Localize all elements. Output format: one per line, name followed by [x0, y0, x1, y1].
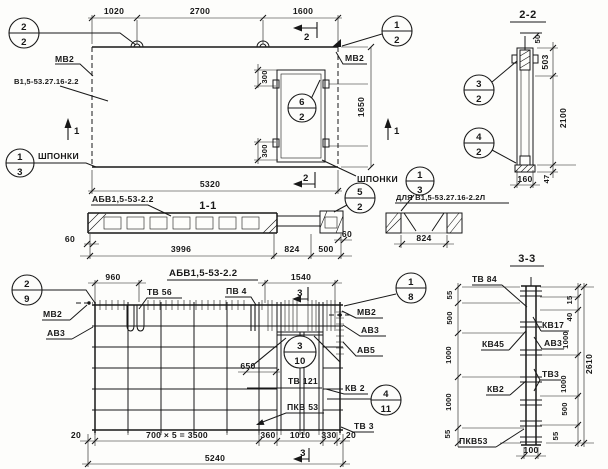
callout-elevation-left: 2 2 [9, 18, 39, 48]
arrow-up-icon [385, 118, 392, 128]
leader-line [42, 290, 95, 303]
arrow-icon [256, 419, 265, 425]
core-void [150, 217, 167, 229]
callout-num: 6 [299, 97, 305, 108]
callout-num: 2 [24, 279, 30, 290]
dim-2700: 2700 [190, 6, 210, 16]
arrow-left-icon [293, 181, 302, 188]
core-void [219, 217, 236, 229]
section-1-1-view: АБВ1,5-53-2.2 1-1 60 3996 824 500 60 5 2 [65, 183, 375, 259]
section-mark-label: 1 [74, 126, 80, 137]
end-block-core [325, 217, 337, 228]
callout-num: 3 [297, 341, 303, 352]
dim-right-55: 55 [551, 431, 560, 440]
dim-right-1000a: 1000 [561, 331, 570, 349]
dim-60-right: 60 [342, 229, 352, 239]
core-void [242, 217, 259, 229]
callout-sheet: 3 [17, 167, 23, 178]
dim-60-left: 60 [65, 234, 75, 244]
section-mark-label: 2 [303, 173, 309, 184]
core-void [104, 217, 121, 229]
dim-right-500: 500 [560, 402, 569, 415]
dim-left-500: 500 [445, 311, 454, 324]
dim-row: 700 × 5 = 3500 [146, 430, 208, 440]
section-mark-label: 1 [394, 126, 400, 137]
label-tv56: ТВ 56 [147, 287, 172, 297]
label-av3: АВ3 [544, 338, 562, 348]
leader-line [344, 294, 396, 306]
bottom-cap [515, 165, 535, 172]
label-kv45: КВ45 [482, 339, 504, 349]
end-block [447, 213, 462, 233]
callout-sheet: 10 [294, 356, 305, 367]
label-kv17: КВ17 [542, 320, 564, 330]
joint-strip [277, 216, 320, 226]
dim-3996: 3996 [171, 244, 191, 254]
label-tv84: ТВ 84 [472, 274, 497, 284]
dim-5320: 5320 [200, 179, 220, 189]
label-mv2-left: МВ2 [55, 54, 74, 64]
dim-right-15: 15 [565, 295, 574, 304]
callout-section22-lower: 4 2 [464, 128, 494, 158]
leader-line [492, 150, 516, 163]
callout-elevation-right: 1 2 [382, 16, 412, 46]
section-mark-label: 3 [300, 448, 306, 459]
callout-section22-upper: 3 2 [464, 75, 494, 105]
joint-lines [401, 213, 447, 231]
label-tv121: ТВ 121 [288, 376, 318, 386]
label-kv2: КВ 2 [345, 383, 365, 393]
leader-line [225, 297, 256, 305]
dim-160: 160 [517, 174, 532, 184]
callout-num: 1 [417, 170, 423, 181]
anchor-mark [323, 80, 329, 88]
drawing-canvas: 1 1 2 2 1020 2700 1600 5320 1650 300 300… [0, 0, 608, 469]
dim-5240: 5240 [205, 453, 225, 463]
callout-mesh-bottom-right: 4 11 [371, 385, 401, 415]
anchor-mark [273, 139, 279, 147]
view-title: 3-3 [518, 253, 535, 265]
dim-right-40: 40 [565, 313, 574, 322]
dim-960: 960 [105, 272, 120, 282]
dim-right-1000b: 1000 [559, 375, 568, 393]
callout-mesh-top-right: 1 8 [396, 273, 426, 303]
dim-300-top: 300 [260, 70, 269, 83]
section-mark-label: 3 [297, 288, 303, 299]
callout-detail: 1 3 [406, 167, 434, 196]
leader-line [91, 205, 171, 216]
label-keys-left: ШПОНКИ [38, 151, 79, 161]
label-tv3: ТВ3 [542, 369, 559, 379]
hatch-lines [386, 213, 462, 233]
dim-824: 824 [284, 244, 299, 254]
drawing-sheet: 1 1 2 2 1020 2700 1600 5320 1650 300 300… [0, 0, 608, 469]
label-mark: АБВ1,5-53-2.2 [92, 194, 154, 204]
section-2-2-view: 2-2 50 503 2100 47 160 3 2 4 2 [464, 9, 576, 188]
callout-num: 3 [476, 79, 482, 90]
elevation-view: 1 1 2 2 1020 2700 1600 5320 1650 300 300… [6, 6, 412, 194]
anchor-mark [323, 139, 329, 147]
leader-line [34, 163, 96, 167]
callout-sheet: 2 [476, 94, 482, 105]
leader-line [55, 64, 93, 76]
label-mv2-right: МВ2 [357, 307, 376, 317]
bottom-joint [520, 156, 530, 165]
member-inner-lines [521, 70, 529, 156]
callout-num: 1 [17, 152, 23, 163]
bar-end-dot [87, 301, 90, 304]
section-mark-label: 2 [304, 32, 310, 43]
anchor-mark [273, 80, 279, 88]
label-mv2-right: МВ2 [345, 53, 364, 63]
view-title: 2-2 [519, 9, 536, 21]
member-outline [517, 48, 533, 165]
label-panel-mark: В1,5-53.27.16-2.2 [14, 77, 79, 86]
slab-outline [88, 213, 277, 233]
leader-line [492, 61, 517, 82]
hatch-lines [515, 165, 534, 172]
callout-sheet: 2 [21, 37, 27, 48]
label-mv2-left: МВ2 [43, 309, 62, 319]
label-av5: АВ5 [357, 345, 375, 355]
dim-330: 330 [321, 430, 336, 440]
dim-lines-left [458, 283, 524, 447]
leader-line [60, 86, 108, 101]
callout-sheet: 2 [476, 147, 482, 158]
dim-50: 50 [533, 35, 542, 44]
dim-20-left: 20 [71, 430, 81, 440]
label-kv2: КВ2 [487, 384, 504, 394]
hatch-lines [88, 213, 277, 233]
dim-650: 650 [240, 361, 255, 371]
callout-opening: 6 2 [288, 94, 316, 123]
label-av3-right: АВ3 [361, 325, 379, 335]
callout-section11: 5 2 [345, 183, 375, 213]
dim-824: 824 [416, 233, 431, 243]
dim-left-1000a: 1000 [444, 346, 453, 364]
label-tv3: ТВ 3 [354, 421, 374, 431]
callout-sheet: 9 [24, 294, 30, 305]
dim-1600: 1600 [293, 6, 313, 16]
end-block [386, 213, 401, 233]
leader-line [311, 80, 320, 99]
callout-sheet: 2 [357, 202, 363, 213]
reinforcement-view: АБВ1,5-53-2.2 960 1540 650 20 700 × 5 = … [12, 268, 426, 467]
dim-360: 360 [260, 430, 275, 440]
section-3-3-view: 3-3 ТВ 84 КВ17 КВ45 АВ3 КВ2 ТВ3 ПКВ53 55… [443, 253, 594, 459]
leader-line [342, 34, 382, 46]
bar-end-dot [338, 313, 341, 316]
label-pkv53: ПКВ 53 [287, 402, 318, 412]
dim-1020: 1020 [104, 6, 124, 16]
callout-num: 5 [357, 187, 363, 198]
dim-1540: 1540 [291, 272, 311, 282]
hatch-lines [320, 211, 343, 233]
hairpin-bars [127, 305, 144, 331]
core-void [173, 217, 190, 229]
callout-num: 1 [408, 277, 414, 288]
arrow-up-icon [65, 118, 72, 128]
rebar-ticks [520, 291, 542, 442]
callout-mesh-top-left: 2 9 [12, 275, 42, 305]
dim-300-bottom: 300 [260, 144, 269, 157]
hatch-lines [520, 50, 530, 68]
dim-left-55a: 55 [445, 290, 454, 299]
label-av3-left: АВ3 [47, 328, 65, 338]
dim-overall-2610: 2610 [584, 354, 594, 374]
dim-left-55b: 55 [443, 429, 452, 438]
callout-num: 4 [476, 132, 482, 143]
detail-824-view: ДЛЯ В1,5-53.27.16-2.2Л 824 1 3 [386, 167, 509, 248]
callout-num: 2 [21, 22, 27, 33]
callout-sheet: 2 [394, 35, 400, 46]
dim-bottom-100: 100 [523, 445, 538, 455]
end-block [320, 211, 343, 233]
dim-left-1000b: 1000 [444, 393, 453, 411]
leader-line [39, 33, 136, 45]
dim-47: 47 [542, 175, 551, 184]
leader-line [260, 413, 324, 423]
callout-sheet: 2 [299, 112, 305, 123]
callout-keys-left: 1 3 [6, 149, 34, 178]
label-pkv53: ПКВ53 [459, 436, 488, 446]
dim-500: 500 [318, 244, 333, 254]
callout-num: 1 [394, 20, 400, 31]
pv4-bars [251, 305, 255, 331]
core-void [127, 217, 144, 229]
view-title: 1-1 [199, 200, 216, 212]
callout-num: 4 [383, 389, 389, 400]
dim-503: 503 [540, 54, 550, 69]
callout-mesh-middle: 3 10 [284, 336, 316, 368]
leader-line [472, 285, 527, 307]
dim-1010: 1010 [290, 430, 310, 440]
label-keys-right: ШПОНКИ [357, 174, 398, 184]
view-title: АБВ1,5-53-2.2 [169, 268, 237, 279]
label-pv4: ПВ 4 [226, 286, 247, 296]
callout-sheet: 3 [417, 185, 423, 196]
callout-sheet: 11 [381, 404, 392, 415]
callout-sheet: 8 [408, 292, 414, 303]
side-tab [533, 55, 538, 63]
corner-mark [332, 39, 341, 47]
arrow-left-icon [293, 25, 302, 32]
leader-line [322, 160, 356, 176]
dim-2100: 2100 [558, 108, 568, 128]
dim-1650: 1650 [356, 97, 366, 117]
core-void [196, 217, 213, 229]
